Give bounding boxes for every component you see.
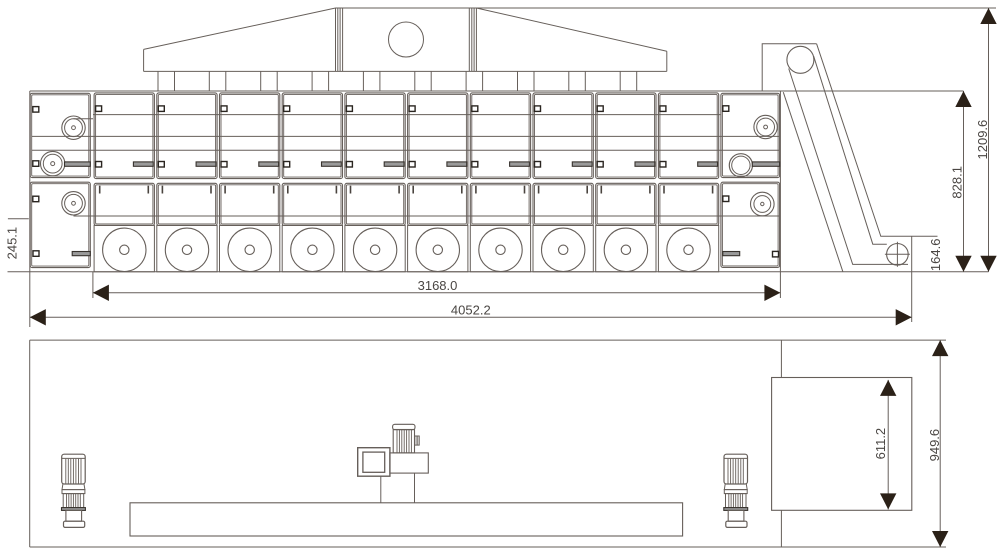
svg-text:164.6: 164.6 (928, 239, 943, 272)
svg-text:245.1: 245.1 (5, 227, 20, 260)
svg-text:3168.0: 3168.0 (418, 278, 458, 293)
svg-text:1209.6: 1209.6 (975, 120, 990, 160)
svg-text:4052.2: 4052.2 (451, 303, 491, 318)
svg-text:949.6: 949.6 (927, 429, 942, 462)
svg-text:611.2: 611.2 (873, 428, 888, 460)
svg-text:828.1: 828.1 (950, 166, 965, 199)
